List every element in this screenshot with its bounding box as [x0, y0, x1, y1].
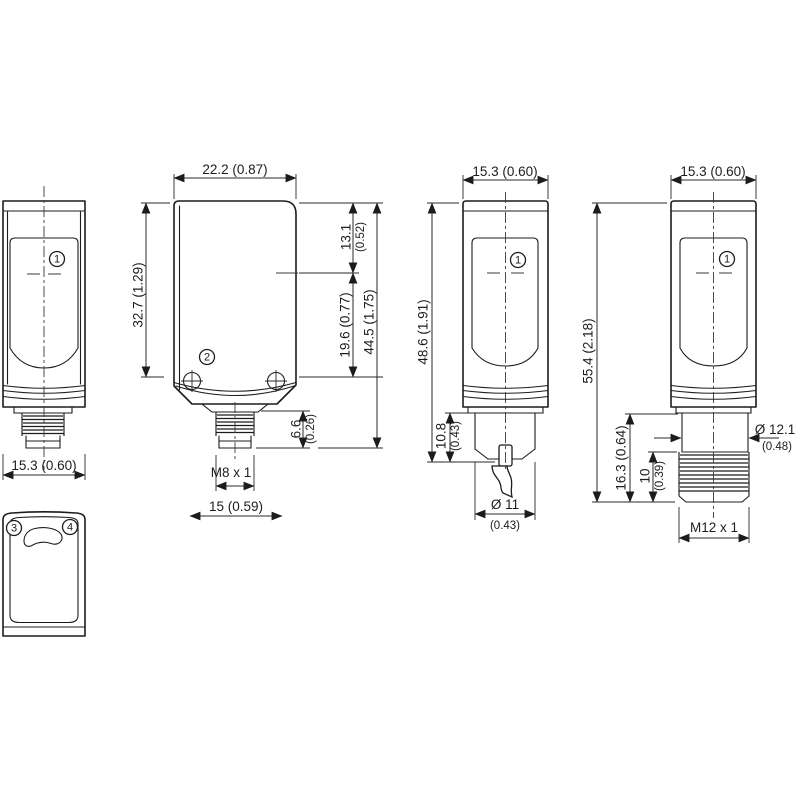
dim-axis-offset: 13.1: [339, 224, 354, 250]
side-view-connector-flange: [14, 407, 72, 413]
dim-m12-thread-length-in: (0.39): [654, 461, 666, 491]
m12-thread: [679, 452, 749, 496]
cable-view-label-window: [472, 238, 538, 366]
cable-stub: [492, 466, 512, 497]
dim-gland-height-in: (0.43): [450, 421, 462, 451]
side-view: 1 15.3 (0.60): [3, 186, 85, 480]
dim-cable-width: 15.3 (0.60): [472, 164, 537, 179]
dim-cable-height: 48.6 (1.91): [416, 299, 431, 364]
cable-exit-view: 1 15.3 (0.60) 48.6 (1.91) 10.8 (0.43) Ø …: [416, 164, 549, 532]
marker-4-label: 4: [67, 522, 73, 534]
dim-cable-dia: Ø 11: [491, 497, 519, 512]
marker-2-label: 2: [204, 352, 210, 364]
dim-m12-width: 15.3 (0.60): [680, 164, 745, 179]
marker-1-cable-label: 1: [515, 255, 521, 267]
dim-m12-thread-length: 10: [638, 468, 653, 483]
m12-total-ext: [592, 203, 675, 502]
face-view: 3 4: [3, 512, 85, 636]
m12-connector-view: 1 15.3 (0.60) 55.4 (2.18) 16.3 (0.64) 10…: [581, 164, 796, 543]
dim-front-width: 22.2 (0.87): [202, 162, 267, 177]
dim-total-height: 44.5 (1.75): [362, 289, 377, 354]
drawing-canvas: 1 15.3 (0.60) 3 4 2 22.2 (0.87): [0, 0, 800, 800]
dim-connector-height-in: (0.26): [305, 414, 317, 444]
m12-thread-label: M12 x 1: [690, 520, 738, 535]
marker-3-label: 3: [11, 523, 17, 535]
dim-connector-height: 6.6: [289, 420, 304, 439]
m12-smooth-cylinder: [682, 413, 748, 452]
dim-m12-dia: Ø 12.1: [755, 422, 796, 437]
face-view-optics-window: [24, 528, 62, 547]
dim-cable-dia-in: (0.43): [490, 520, 520, 532]
dim-m12-dia-in: (0.48): [762, 441, 792, 453]
dim-m12-total-height: 55.4 (2.18): [581, 318, 596, 383]
dim-m12-connector-height: 16.3 (0.64): [614, 425, 629, 490]
dim-axis-offset-in: (0.52): [355, 222, 367, 252]
m8-thread-label: M8 x 1: [211, 465, 252, 480]
side-view-connector-tip: [26, 436, 60, 448]
marker-1-label: 1: [54, 254, 60, 266]
dim-gland-height: 10.8: [434, 423, 449, 449]
side-view-m8-thread: [22, 413, 64, 436]
dimensional-drawing: 1 15.3 (0.60) 3 4 2 22.2 (0.87): [0, 0, 800, 800]
dim-front-body-height: 32.7 (1.29): [131, 262, 146, 327]
dim-hole-offset: 19.6 (0.77): [338, 292, 353, 357]
dim-flange-width: 15 (0.59): [209, 499, 263, 514]
front-view: 2 22.2 (0.87) 32.7 (1.29) 13.1 (0.52) 19…: [131, 162, 384, 516]
m12-thread-bottom: [679, 496, 749, 502]
marker-1-m12-label: 1: [724, 254, 730, 266]
dim-side-width: 15.3 (0.60): [11, 458, 76, 473]
